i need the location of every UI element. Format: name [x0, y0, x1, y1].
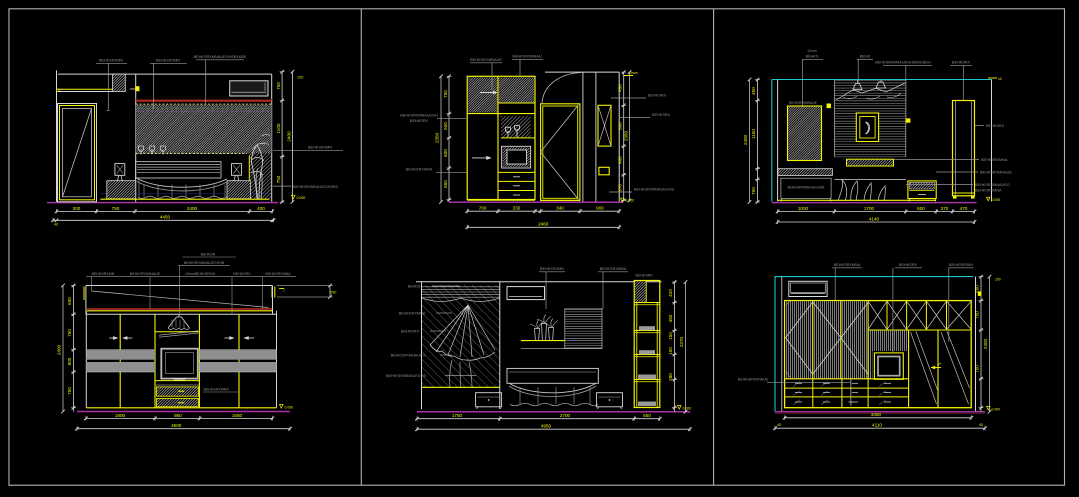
- svg-text:BEHKSRX: BEHKSRX: [899, 263, 918, 267]
- svg-text:BEHKSRXMNAUEG: BEHKSRXMNAUEG: [975, 183, 1010, 187]
- svg-text:300: 300: [73, 206, 81, 211]
- svg-text:1100: 1100: [276, 123, 281, 133]
- svg-text:4110: 4110: [872, 423, 882, 428]
- svg-text:BEHKSRXMN: BEHKSRXMN: [540, 267, 564, 271]
- svg-text:BEHKSRX: BEHKSRX: [233, 272, 251, 276]
- svg-text:2700: 2700: [560, 413, 571, 418]
- svg-text:BEHKSRXMNAUE: BEHKSRXMNAUE: [130, 272, 161, 276]
- svg-text:600: 600: [67, 297, 72, 305]
- svg-text:750: 750: [975, 311, 980, 319]
- svg-text:280: 280: [668, 373, 673, 381]
- svg-text:BEHKSR: BEHKSR: [201, 252, 216, 256]
- svg-text:BEHKSRXMNA: BEHKSRXMNA: [600, 267, 627, 271]
- svg-text:2350: 2350: [624, 130, 629, 141]
- svg-text:BEHKSRX: BEHKSRX: [401, 330, 420, 334]
- svg-text:250: 250: [330, 291, 336, 295]
- svg-text:2350: 2350: [435, 132, 440, 143]
- svg-text:4950: 4950: [541, 424, 552, 429]
- svg-text:150: 150: [668, 347, 673, 355]
- svg-text:BEHKSRXMNAUEGHSB: BEHKSRXMNAUEGHSB: [184, 261, 225, 265]
- svg-text:500: 500: [443, 122, 448, 130]
- svg-text:0.000: 0.000: [626, 199, 635, 203]
- svg-text:BEHKSRX: BEHKSRX: [410, 119, 429, 123]
- svg-text:4450: 4450: [160, 215, 171, 220]
- svg-text:BEHKSRXMNAUEGH: BEHKSRXMNAUEGH: [400, 114, 438, 118]
- svg-text:420: 420: [668, 289, 673, 297]
- svg-text:BEHKSRXMNAUEGHSB: BEHKSRXMNAUEGHSB: [787, 186, 825, 190]
- svg-text:BEHKSRXMNAUEGHSBXKBE: BEHKSRXMNAUEGHSBXKBE: [194, 55, 247, 59]
- svg-text:2370: 2370: [679, 336, 684, 347]
- svg-text:1650: 1650: [232, 413, 243, 418]
- svg-text:0.000: 0.000: [285, 405, 294, 409]
- svg-text:450: 450: [751, 87, 756, 95]
- svg-text:4140: 4140: [869, 216, 880, 221]
- svg-text:400: 400: [257, 206, 265, 211]
- svg-text:950: 950: [174, 413, 182, 418]
- svg-text:450: 450: [668, 314, 673, 322]
- svg-text:2400: 2400: [187, 206, 198, 211]
- svg-text:BEHKSRXMNAUE: BEHKSRXMNAUE: [980, 171, 1012, 175]
- svg-text:900: 900: [596, 206, 604, 211]
- svg-text:40: 40: [54, 223, 58, 227]
- svg-text:40: 40: [979, 423, 983, 427]
- svg-text:BEHKSRX: BEHKSRX: [986, 124, 1005, 128]
- svg-text:BEHKSRXMNA: BEHKSRXMNA: [265, 272, 291, 276]
- svg-text:BEHKSRX: BEHKSRX: [648, 94, 667, 98]
- svg-text:330: 330: [513, 206, 521, 211]
- svg-text:750: 750: [276, 175, 281, 183]
- svg-text:BEHKSRXMNAUE: BEHKSRXMNAUE: [789, 101, 817, 105]
- svg-text:120: 120: [297, 76, 303, 80]
- svg-text:750: 750: [67, 387, 72, 395]
- svg-text:450: 450: [618, 84, 623, 92]
- svg-text:BEHKSRXMN: BEHKSRXMN: [99, 59, 123, 63]
- svg-text:1000: 1000: [798, 206, 809, 211]
- svg-text:BEHKSRXMNAUEGHS: BEHKSRXMNAUEGHS: [386, 374, 427, 378]
- svg-text:600: 600: [917, 206, 925, 211]
- svg-text:370: 370: [618, 184, 623, 192]
- svg-text:1150: 1150: [751, 129, 756, 139]
- svg-text:100: 100: [995, 278, 1001, 282]
- svg-text:BEHKSRXMN: BEHKSRXMN: [92, 272, 115, 276]
- svg-text:150: 150: [668, 332, 673, 340]
- svg-text:1750: 1750: [452, 413, 463, 418]
- svg-text:BEHKS: BEHKS: [408, 285, 421, 289]
- svg-text:370: 370: [941, 206, 949, 211]
- svg-text:10mmBEHKSRXM: 10mmBEHKSRXM: [185, 272, 215, 276]
- svg-text:BEHKS: BEHKS: [806, 55, 819, 59]
- svg-text:BEHKSRXMNA: BEHKSRXMNA: [399, 312, 426, 316]
- svg-text:0.000: 0.000: [683, 406, 692, 410]
- svg-text:750: 750: [751, 187, 756, 195]
- svg-text:12: 12: [998, 77, 1002, 81]
- svg-text:750: 750: [276, 82, 281, 90]
- svg-text:BEHKSRXMNAUE: BEHKSRXMNAUE: [470, 58, 502, 62]
- svg-text:BEHKSRXMNA: BEHKSRXMNA: [204, 388, 230, 392]
- svg-text:4500: 4500: [171, 423, 182, 428]
- svg-text:750: 750: [443, 90, 448, 98]
- svg-text:BEHK: BEHK: [860, 55, 871, 59]
- svg-text:BEHKSRXMNA: BEHKSRXMNA: [834, 263, 861, 267]
- svg-text:750: 750: [67, 329, 72, 337]
- svg-text:2400: 2400: [286, 131, 291, 142]
- svg-text:1900: 1900: [115, 413, 126, 418]
- svg-text:BEHKSRXMN: BEHKSRXMN: [156, 59, 180, 63]
- svg-text:550: 550: [643, 413, 651, 418]
- svg-text:2400: 2400: [743, 134, 748, 145]
- svg-text:BEHKSRXMNA: BEHKSRXMNA: [406, 168, 433, 172]
- svg-text:BEHKSRXMNAUEGHSBXKBEH: BEHKSRXMNAUEGHSBXKBEH: [875, 61, 931, 65]
- svg-text:2460: 2460: [538, 222, 549, 227]
- svg-text:800: 800: [67, 357, 72, 365]
- svg-text:BEHKSRXMN: BEHKSRXMN: [308, 146, 332, 150]
- svg-text:BEHKSRX: BEHKSRX: [652, 113, 671, 117]
- svg-text:1700: 1700: [864, 206, 875, 211]
- svg-text:3350: 3350: [871, 412, 882, 417]
- svg-text:BEHKSRXMNAUEGHS: BEHKSRXMNAUEGHS: [634, 188, 675, 192]
- svg-text:BEHKSRXMN: BEHKSRXMN: [949, 263, 973, 267]
- svg-text:600: 600: [443, 149, 448, 157]
- svg-text:BEHKSRX: BEHKSRX: [952, 61, 971, 65]
- svg-text:650: 650: [443, 180, 448, 188]
- svg-text:750: 750: [112, 206, 120, 211]
- svg-text:2400: 2400: [983, 338, 988, 349]
- svg-text:BEHKSRXMNAUE: BEHKSRXMNAUE: [738, 378, 769, 382]
- svg-text:600: 600: [618, 122, 623, 130]
- svg-text:470: 470: [960, 206, 968, 211]
- svg-text:0.000: 0.000: [992, 407, 1001, 411]
- svg-text:0.000: 0.000: [297, 196, 306, 200]
- svg-text:5mm: 5mm: [630, 71, 638, 75]
- svg-text:BEHKSRX: BEHKSRX: [635, 274, 653, 278]
- svg-text:BEHKSRXMNAUEG: BEHKSRXMNAUEG: [391, 354, 426, 358]
- svg-text:2400: 2400: [56, 344, 61, 355]
- svg-text:40: 40: [777, 423, 781, 427]
- svg-text:340: 340: [556, 206, 564, 211]
- svg-text:400: 400: [618, 156, 623, 164]
- svg-text:BEHKSRXMNAU: BEHKSRXMNAU: [512, 55, 542, 59]
- svg-text:700: 700: [479, 206, 487, 211]
- svg-text:BEHKSRXMNA: BEHKSRXMNA: [975, 189, 1002, 193]
- svg-text:BEHKSRXMNA: BEHKSRXMNA: [981, 158, 1008, 162]
- svg-text:BEHKSRXMNAUEGHSBX: BEHKSRXMNAUEGHSBX: [293, 185, 339, 189]
- svg-text:750: 750: [975, 365, 980, 373]
- svg-text:0.000: 0.000: [992, 198, 1001, 202]
- svg-text:12mm: 12mm: [807, 49, 817, 53]
